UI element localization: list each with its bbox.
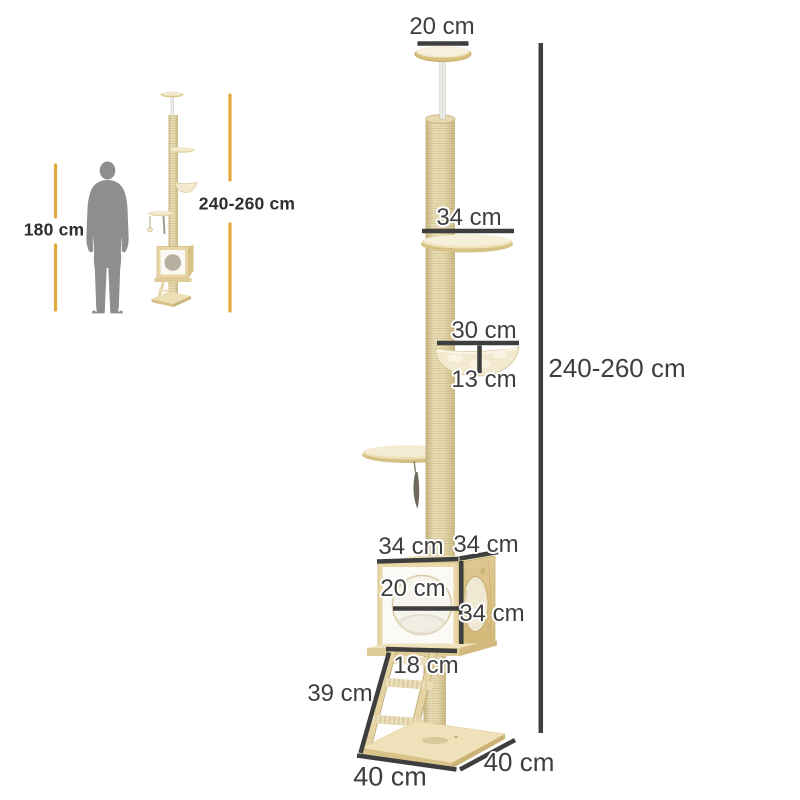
dim-label-hammock-depth: 13 cm: [451, 368, 516, 392]
mini-house-hole: [165, 254, 182, 271]
reference-tree-height-label: 240-260 cm: [199, 195, 295, 213]
hanging-rod: [440, 58, 446, 119]
dim-label-total-height: 240-260 cm: [548, 355, 685, 381]
dim-label-hammock-width: 30 cm: [451, 319, 516, 343]
mini-house-base: [155, 278, 192, 282]
product-dimension-diagram: 180 cm 240-260 cm 20 cm 34 cm 30 cm 13 c…: [0, 0, 800, 800]
dim-label-base-width: 40 cm: [353, 764, 427, 791]
mini-house-side: [189, 245, 194, 279]
dim-label-house-height: 34 cm: [459, 602, 524, 626]
human-height-label: 180 cm: [24, 221, 85, 239]
diagram-artwork: [0, 0, 800, 800]
ceiling-disc: [415, 46, 471, 62]
reference-cat-tree: [148, 92, 197, 307]
dim-label-ladder-width: 18 cm: [393, 654, 458, 678]
mini-hammock: [175, 182, 197, 193]
dim-label-top-disc: 20 cm: [409, 15, 474, 39]
human-silhouette: [86, 162, 128, 314]
dim-line-ladder-width: [386, 649, 457, 651]
mini-rod: [171, 96, 174, 116]
dim-label-base-depth: 40 cm: [484, 749, 555, 775]
hanging-toy: [413, 461, 419, 509]
dim-label-house-width: 34 cm: [378, 535, 443, 559]
mini-toy-strip: [164, 216, 165, 234]
dim-label-house-depth: 34 cm: [453, 533, 518, 557]
dim-label-ladder-length: 39 cm: [307, 682, 372, 706]
upper-platform: [421, 235, 513, 253]
dim-label-upper-platform: 34 cm: [436, 206, 501, 230]
dim-label-house-hole: 20 cm: [380, 577, 445, 601]
